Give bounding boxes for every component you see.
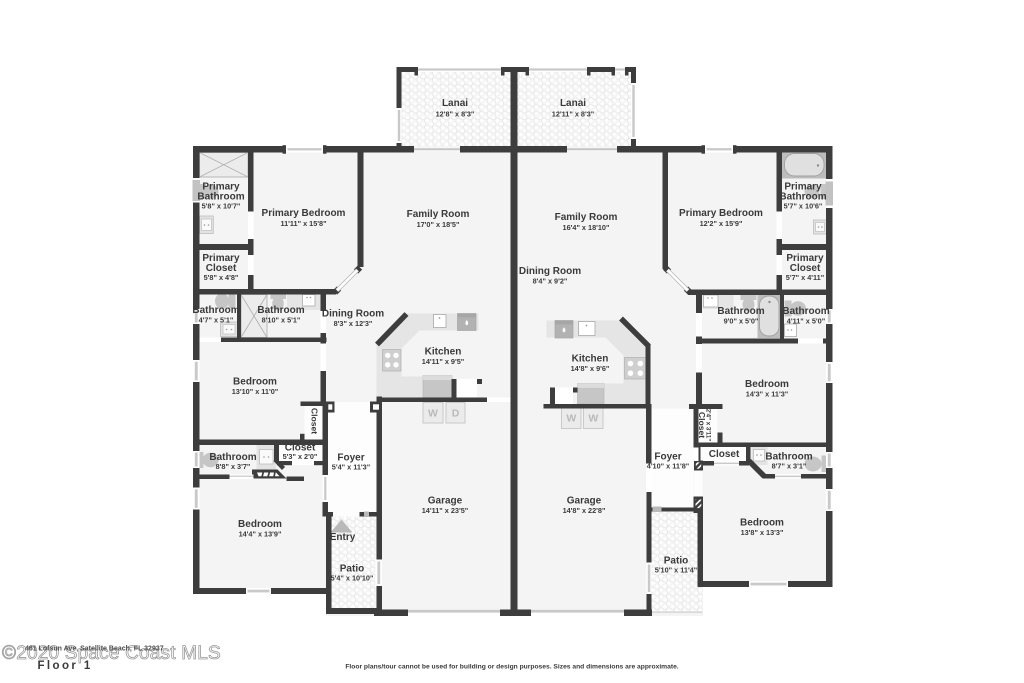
svg-text:12'2" x 15'9": 12'2" x 15'9" <box>700 219 743 228</box>
svg-text:16'4" x 18'10": 16'4" x 18'10" <box>563 223 610 232</box>
svg-text:14'11" x 9'5": 14'11" x 9'5" <box>422 357 464 366</box>
svg-text:5'4" x 11'3": 5'4" x 11'3" <box>332 463 370 472</box>
svg-text:D: D <box>452 408 460 420</box>
svg-text:4'11" x 5'0": 4'11" x 5'0" <box>787 317 825 326</box>
svg-text:Floor plans/tour cannot be use: Floor plans/tour cannot be used for buil… <box>345 664 678 671</box>
svg-text:Bedroom: Bedroom <box>238 519 282 530</box>
svg-text:5'7" x 10'6": 5'7" x 10'6" <box>784 202 823 211</box>
svg-text:9'0" x 5'0": 9'0" x 5'0" <box>724 317 759 326</box>
svg-text:17'0" x 18'5": 17'0" x 18'5" <box>417 220 460 229</box>
svg-text:14'8" x 9'6": 14'8" x 9'6" <box>571 364 610 373</box>
svg-text:8'7" x 3'1": 8'7" x 3'1" <box>772 462 807 471</box>
svg-text:8'4" x 9'2": 8'4" x 9'2" <box>533 277 568 286</box>
svg-text:12'8" x 8'3": 12'8" x 8'3" <box>436 110 475 119</box>
svg-text:14'3" x 11'3": 14'3" x 11'3" <box>746 390 788 399</box>
svg-text:Family Room: Family Room <box>555 212 618 223</box>
svg-text:5'3" x 2'0": 5'3" x 2'0" <box>283 452 318 461</box>
svg-text:Primary Bedroom: Primary Bedroom <box>679 208 763 219</box>
svg-text:W: W <box>588 413 598 425</box>
svg-text:461 Lofsun Ave, Satellite Beac: 461 Lofsun Ave, Satellite Beach, FL 3293… <box>25 646 164 653</box>
svg-text:W: W <box>566 413 576 425</box>
svg-text:Closet: Closet <box>709 449 740 460</box>
svg-text:Bedroom: Bedroom <box>233 377 277 388</box>
svg-text:Bathroom: Bathroom <box>257 305 304 316</box>
svg-text:Family Room: Family Room <box>407 209 470 220</box>
svg-text:Kitchen: Kitchen <box>572 354 609 365</box>
svg-text:8'3" x 12'3": 8'3" x 12'3" <box>334 319 373 328</box>
svg-text:5'4" x 10'10": 5'4" x 10'10" <box>331 574 374 583</box>
svg-text:5'8" x 4'8": 5'8" x 4'8" <box>204 273 239 282</box>
svg-text:Lanai: Lanai <box>560 98 586 109</box>
svg-text:8'10" x 5'1": 8'10" x 5'1" <box>262 316 301 325</box>
svg-text:14'8" x 22'8": 14'8" x 22'8" <box>563 506 606 515</box>
svg-text:11'11" x 15'8": 11'11" x 15'8" <box>280 219 326 228</box>
svg-text:Bathroom: Bathroom <box>717 306 764 317</box>
svg-text:14'4" x 13'9": 14'4" x 13'9" <box>239 530 282 539</box>
svg-text:4'10" x 11'8": 4'10" x 11'8" <box>647 462 689 471</box>
svg-text:5'8" x 10'7": 5'8" x 10'7" <box>202 202 241 211</box>
svg-text:Dining Room: Dining Room <box>322 309 384 320</box>
svg-text:4'7" x 5'1": 4'7" x 5'1" <box>199 316 234 325</box>
svg-text:W: W <box>428 408 438 420</box>
svg-text:12'11" x 8'3": 12'11" x 8'3" <box>552 110 594 119</box>
svg-text:Garage: Garage <box>567 496 602 507</box>
svg-text:Kitchen: Kitchen <box>425 347 462 358</box>
svg-text:Lanai: Lanai <box>442 98 468 109</box>
svg-text:Dining Room: Dining Room <box>519 266 581 277</box>
svg-text:5'7" x 4'11": 5'7" x 4'11" <box>786 273 824 282</box>
svg-text:8'8" x 3'7": 8'8" x 3'7" <box>216 462 251 471</box>
svg-text:2'4" x 3'11": 2'4" x 3'11" <box>705 409 712 442</box>
svg-text:13'10" x 11'0": 13'10" x 11'0" <box>232 387 279 396</box>
svg-text:5'10" x 11'4": 5'10" x 11'4" <box>655 566 697 575</box>
svg-text:Entry: Entry <box>330 532 356 543</box>
svg-text:Garage: Garage <box>428 496 463 507</box>
svg-text:13'8" x 13'3": 13'8" x 13'3" <box>741 528 784 537</box>
svg-text:Bedroom: Bedroom <box>740 518 784 529</box>
svg-text:Floor 1: Floor 1 <box>38 660 93 672</box>
svg-text:14'11" x 23'5": 14'11" x 23'5" <box>422 506 469 515</box>
svg-text:Primary Bedroom: Primary Bedroom <box>262 208 346 219</box>
svg-text:Bathroom: Bathroom <box>782 306 829 317</box>
svg-text:Bedroom: Bedroom <box>745 379 789 390</box>
svg-text:Bathroom: Bathroom <box>192 305 239 316</box>
svg-text:Closet: Closet <box>310 408 320 434</box>
